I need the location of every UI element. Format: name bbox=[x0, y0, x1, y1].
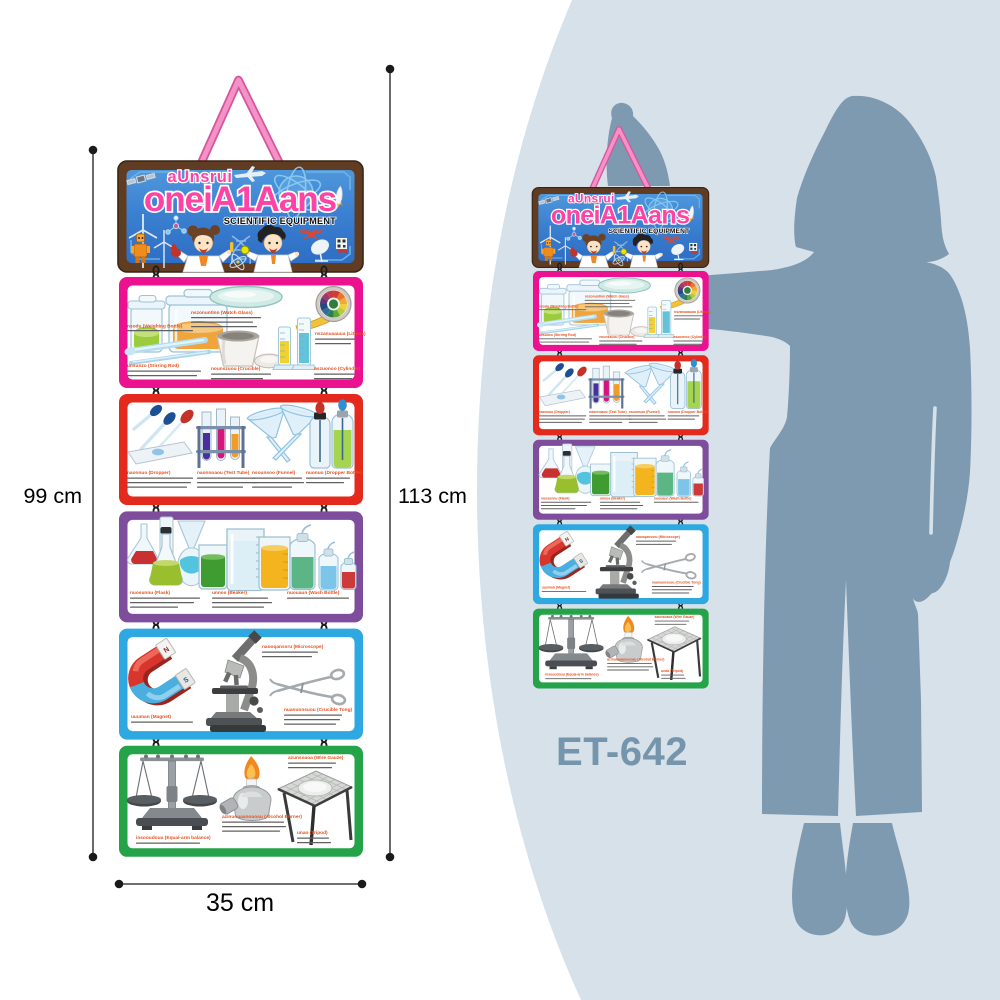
svg-text:113 cm: 113 cm bbox=[398, 484, 467, 508]
svg-text:35 cm: 35 cm bbox=[206, 889, 274, 917]
svg-text:99 cm: 99 cm bbox=[23, 484, 82, 508]
svg-text:ET-642: ET-642 bbox=[556, 730, 688, 774]
